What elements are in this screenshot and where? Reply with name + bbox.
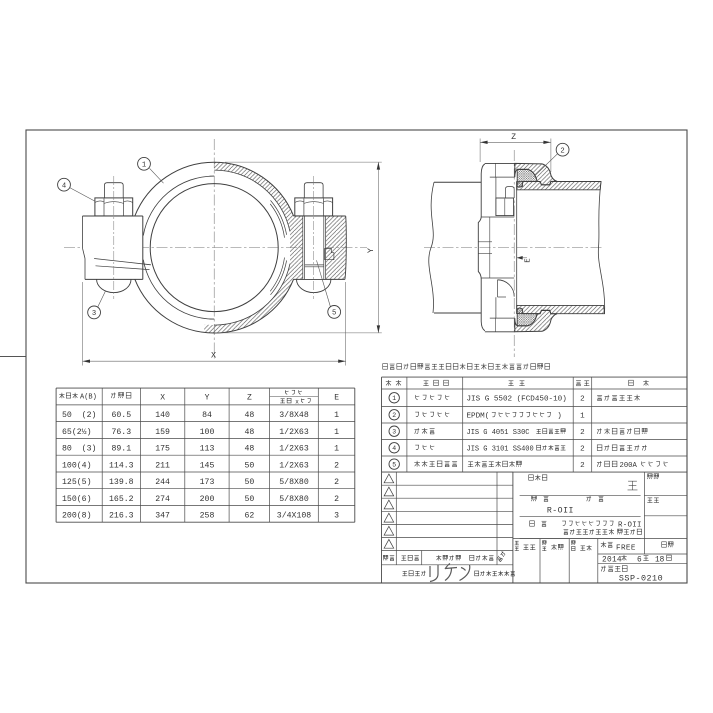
svg-text:X: X: [211, 351, 216, 361]
svg-text:139.8: 139.8: [109, 478, 134, 487]
svg-text:5: 5: [332, 310, 336, 318]
svg-text:3: 3: [92, 310, 96, 318]
svg-text:x: x: [295, 398, 299, 405]
svg-text:E: E: [525, 258, 533, 262]
svg-text:1/2X63: 1/2X63: [279, 427, 309, 437]
svg-text:200A: 200A: [620, 462, 638, 470]
svg-text:1: 1: [334, 445, 339, 454]
svg-text:): ): [557, 413, 562, 421]
svg-text:2: 2: [580, 462, 585, 470]
svg-text:5: 5: [392, 461, 396, 468]
svg-text:5/8X80: 5/8X80: [279, 477, 309, 487]
svg-text:48: 48: [244, 411, 254, 420]
svg-text:2: 2: [334, 495, 339, 504]
svg-text:175: 175: [155, 445, 170, 454]
svg-text:211: 211: [155, 461, 170, 470]
svg-text:216.3: 216.3: [109, 512, 134, 521]
svg-text:1: 1: [142, 161, 146, 169]
svg-text:X: X: [160, 394, 165, 403]
svg-text:4: 4: [392, 445, 396, 452]
svg-text:1: 1: [392, 395, 396, 402]
svg-text:173: 173: [200, 478, 215, 487]
svg-text:EPDM(: EPDM(: [467, 413, 490, 421]
svg-text:3/4X108: 3/4X108: [277, 511, 311, 521]
svg-text:SSP-0210: SSP-0210: [619, 573, 663, 583]
svg-text:100(4): 100(4): [62, 460, 91, 470]
svg-text:FREE: FREE: [616, 544, 636, 552]
svg-text:50: 50: [244, 478, 254, 487]
svg-text:113: 113: [200, 445, 215, 454]
svg-text:5/8X80: 5/8X80: [279, 494, 309, 504]
svg-text:Z: Z: [247, 394, 252, 403]
svg-text:2: 2: [560, 147, 564, 155]
svg-text:200: 200: [200, 495, 215, 504]
svg-text:150(6): 150(6): [62, 494, 91, 504]
svg-text:76.3: 76.3: [111, 428, 131, 437]
svg-text:1: 1: [334, 428, 339, 437]
svg-text:50 (2): 50 (2): [62, 410, 96, 420]
svg-text:165.2: 165.2: [109, 495, 134, 504]
svg-text:244: 244: [155, 478, 170, 487]
svg-text:50: 50: [244, 495, 254, 504]
svg-text:3/8X48: 3/8X48: [279, 410, 309, 420]
svg-text:347: 347: [155, 512, 170, 521]
svg-text:4: 4: [62, 182, 66, 190]
svg-text:2: 2: [392, 412, 396, 419]
svg-text:114.3: 114.3: [109, 461, 134, 470]
svg-text:84: 84: [202, 411, 212, 420]
svg-text:JIS G 5502 (FCD450-10): JIS G 5502 (FCD450-10): [467, 396, 567, 404]
svg-text:60.5: 60.5: [111, 411, 131, 420]
svg-text:125(5): 125(5): [62, 477, 91, 487]
svg-text:Z: Z: [511, 133, 516, 142]
svg-text:1/2X63: 1/2X63: [279, 444, 309, 454]
svg-text:2: 2: [334, 461, 339, 470]
svg-text:2: 2: [580, 396, 585, 404]
svg-text:JIS G 4051 S30C: JIS G 4051 S30C: [467, 429, 530, 437]
svg-text:1/2X63: 1/2X63: [279, 460, 309, 470]
svg-text:65(2½): 65(2½): [62, 427, 91, 437]
svg-text:Y: Y: [205, 394, 210, 403]
svg-text:159: 159: [155, 428, 170, 437]
svg-text:R-OII: R-OII: [618, 522, 642, 530]
svg-text:1: 1: [334, 411, 339, 420]
svg-text:48: 48: [244, 428, 254, 437]
svg-text:145: 145: [200, 461, 215, 470]
svg-text:48: 48: [244, 445, 254, 454]
svg-text:2: 2: [580, 446, 585, 454]
svg-text:3: 3: [334, 512, 339, 521]
svg-text:89.1: 89.1: [111, 445, 131, 454]
svg-text:E: E: [334, 394, 339, 403]
svg-text:140: 140: [155, 411, 170, 420]
svg-text:80 (3): 80 (3): [62, 444, 96, 454]
svg-text:50: 50: [244, 461, 254, 470]
svg-text:2: 2: [580, 429, 585, 437]
svg-text:62: 62: [244, 512, 254, 521]
svg-text:3: 3: [392, 429, 396, 436]
svg-text:274: 274: [155, 495, 170, 504]
svg-text:258: 258: [200, 512, 215, 521]
svg-text:1: 1: [580, 413, 585, 421]
svg-text:2: 2: [334, 478, 339, 487]
svg-text:JIS G 3101 SS400: JIS G 3101 SS400: [467, 446, 534, 454]
svg-text:200(8): 200(8): [62, 511, 91, 521]
svg-text:Y: Y: [366, 248, 376, 253]
svg-text:R-OII: R-OII: [547, 506, 574, 515]
svg-text:A(B): A(B): [80, 394, 97, 402]
svg-text:100: 100: [200, 428, 215, 437]
